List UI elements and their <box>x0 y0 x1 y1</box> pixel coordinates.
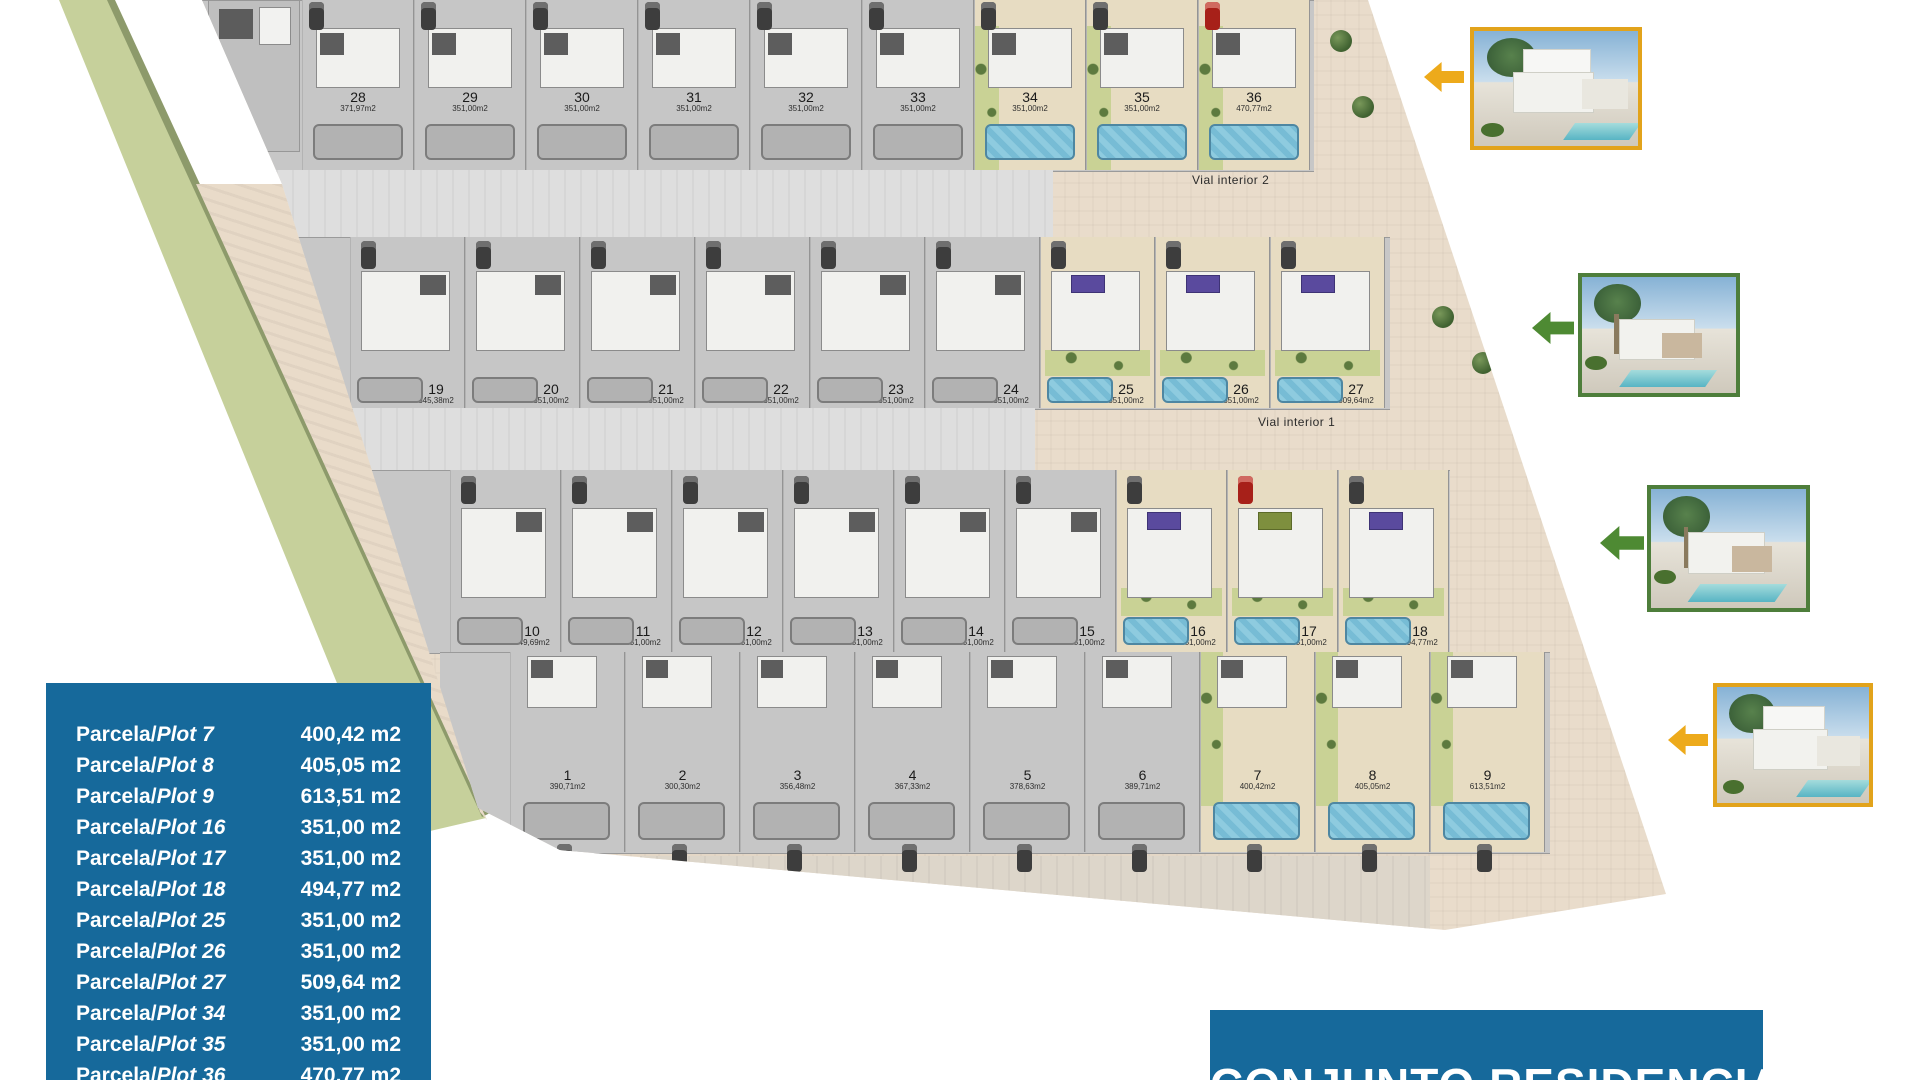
plot-number: 6 <box>1086 768 1199 782</box>
plot-number: 4 <box>856 768 969 782</box>
patio-terrace <box>544 33 568 55</box>
pool <box>425 124 515 160</box>
plot-list-label: Parcela/Plot 34 <box>76 998 225 1029</box>
plot-list-area: 351,00 m2 <box>301 936 405 967</box>
car-icon <box>572 476 587 504</box>
car-icon <box>981 2 996 30</box>
pool <box>638 802 725 840</box>
plot-list-row: Parcela/Plot 36470,77 m2 <box>76 1060 405 1091</box>
plot-label: 29351,00m2 <box>415 90 525 113</box>
car-icon <box>821 241 836 269</box>
plot-label: 31351,00m2 <box>639 90 749 113</box>
tree-icon <box>1472 352 1494 374</box>
plot-number: 29 <box>415 90 525 104</box>
plot-list-row: Parcela/Plot 34351,00 m2 <box>76 998 405 1029</box>
plot-list-area: 400,42 m2 <box>301 719 405 750</box>
solar-panel <box>1147 512 1181 530</box>
car-icon <box>309 2 324 30</box>
car-icon <box>645 2 660 30</box>
pool <box>1796 780 1872 797</box>
patio-terrace <box>320 33 344 55</box>
plot-area: 371,97m2 <box>303 104 413 113</box>
plot-tile: 25351,00m2 <box>1040 237 1155 408</box>
tree-icon <box>1496 268 1518 290</box>
pool <box>649 124 739 160</box>
plot-label: 8405,05m2 <box>1316 768 1429 791</box>
tree-icon <box>1588 548 1610 570</box>
plot-tile: 4367,33m2 <box>855 652 970 852</box>
plot-label: 2300,30m2 <box>626 768 739 791</box>
plot-tile: 19345,38m2 <box>350 237 465 408</box>
plot-label: 36470,77m2 <box>1199 90 1309 113</box>
plot-list-row: Parcela/Plot 18494,77 m2 <box>76 874 405 905</box>
pool <box>790 617 856 645</box>
plot-list-row: Parcela/Plot 7400,42 m2 <box>76 719 405 750</box>
pool <box>1688 584 1787 602</box>
plot-tile: 2300,30m2 <box>625 652 740 852</box>
vial-interior-2-label: Vial interior 2 <box>1192 173 1269 187</box>
pool <box>1047 377 1113 403</box>
plot-number: 3 <box>741 768 854 782</box>
plot-number: 35 <box>1087 90 1197 104</box>
plot-area: 351,00m2 <box>415 104 525 113</box>
pool <box>523 802 610 840</box>
plot-label: 5378,63m2 <box>971 768 1084 791</box>
vial-interior-2-road <box>196 170 1053 237</box>
plot-list-area: 351,00 m2 <box>301 843 405 874</box>
plot-number: 31 <box>639 90 749 104</box>
pool <box>702 377 768 403</box>
patio-terrace <box>768 33 792 55</box>
villa-wing <box>1582 79 1628 109</box>
garden-strip <box>1160 350 1265 376</box>
plot-tile: 23351,00m2 <box>810 237 925 408</box>
plot-tile: 30351,00m2 <box>526 0 638 170</box>
plot-area: 400,42m2 <box>1201 782 1314 791</box>
plot-number: 28 <box>303 90 413 104</box>
patio-terrace <box>627 512 653 532</box>
car-icon <box>1349 476 1364 504</box>
pool <box>1328 802 1415 840</box>
villa-photo-row3 <box>1647 485 1810 612</box>
plot-area: 405,05m2 <box>1316 782 1429 791</box>
car-icon <box>905 476 920 504</box>
plot-label: 30351,00m2 <box>527 90 637 113</box>
plot-tile: 11351,00m2 <box>561 470 672 652</box>
patio-terrace <box>535 275 561 295</box>
plot-tile: 26351,00m2 <box>1155 237 1270 408</box>
pool <box>761 124 851 160</box>
outer-road <box>640 856 1430 930</box>
patio-terrace <box>516 512 542 532</box>
car-icon <box>794 476 809 504</box>
plot-list-row: Parcela/Plot 27509,64 m2 <box>76 967 405 998</box>
plot-tile: 5378,63m2 <box>970 652 1085 852</box>
plot-number: 5 <box>971 768 1084 782</box>
plot-area: 351,00m2 <box>639 104 749 113</box>
car-icon <box>476 241 491 269</box>
plot-list-area: 351,00 m2 <box>301 998 405 1029</box>
plot-list-label: Parcela/Plot 18 <box>76 874 225 905</box>
plot-list-row: Parcela/Plot 9613,51 m2 <box>76 781 405 812</box>
stone-cladding <box>1662 333 1702 359</box>
arrow-left-icon <box>1600 526 1644 560</box>
car-icon <box>902 844 917 872</box>
pool <box>932 377 998 403</box>
patio-terrace <box>992 33 1016 55</box>
car-icon <box>1127 476 1142 504</box>
pool <box>1012 617 1078 645</box>
plot-tile: 6389,71m2 <box>1085 652 1200 852</box>
patio-terrace <box>656 33 680 55</box>
plot-tile: 18494,77m2 <box>1338 470 1449 652</box>
plot-list-label: Parcela/Plot 36 <box>76 1060 225 1091</box>
car-icon <box>787 844 802 872</box>
vial-interior-1-label: Vial interior 1 <box>1258 415 1335 429</box>
project-banner: CONJUNTO RESIDENCIAL <box>1210 1010 1763 1080</box>
pool <box>1097 124 1187 160</box>
plot-label: 9613,51m2 <box>1431 768 1544 791</box>
pool <box>568 617 634 645</box>
car-icon <box>1166 241 1181 269</box>
car-icon <box>1017 844 1032 872</box>
plot-area: 351,00m2 <box>527 104 637 113</box>
car-icon <box>421 2 436 30</box>
plot-list-label: Parcela/Plot 8 <box>76 750 214 781</box>
patio-terrace <box>1336 660 1358 678</box>
pool <box>868 802 955 840</box>
patio-terrace <box>432 33 456 55</box>
plot-tile: 32351,00m2 <box>750 0 862 170</box>
pool <box>1619 370 1717 387</box>
plot-tile: 33351,00m2 <box>862 0 974 170</box>
garden-strip <box>1045 350 1150 376</box>
plot-tile: 28371,97m2 <box>302 0 414 170</box>
pool <box>537 124 627 160</box>
plot-list-label: Parcela/Plot 25 <box>76 905 225 936</box>
patio-terrace <box>531 660 553 678</box>
patio-terrace <box>849 512 875 532</box>
pool <box>472 377 538 403</box>
plot-area: 390,71m2 <box>511 782 624 791</box>
plot-list-label: Parcela/Plot 35 <box>76 1029 225 1060</box>
car-icon <box>1247 844 1262 872</box>
plot-number: 30 <box>527 90 637 104</box>
plot-list-area: 613,51 m2 <box>301 781 405 812</box>
garden-strip <box>1275 350 1380 376</box>
villa-photo-top <box>1470 27 1642 150</box>
plot-tile: 16351,00m2 <box>1116 470 1227 652</box>
bush-icon <box>1481 123 1504 137</box>
car-icon <box>706 241 721 269</box>
pool <box>679 617 745 645</box>
patio-terrace <box>880 275 906 295</box>
tree-icon <box>1672 834 1694 856</box>
tree-icon <box>1432 306 1454 328</box>
plot-tile: 31351,00m2 <box>638 0 750 170</box>
plot-tile: 29351,00m2 <box>414 0 526 170</box>
plot-list-area: 470,77 m2 <box>301 1060 405 1091</box>
plot-tile: 10349,69m2 <box>450 470 561 652</box>
patio-terrace <box>1106 660 1128 678</box>
car-icon <box>361 241 376 269</box>
car-icon <box>1281 241 1296 269</box>
garage-corner-block <box>208 0 300 152</box>
car-icon <box>672 844 687 872</box>
arrow-left-icon <box>1532 312 1574 344</box>
plot-tile: 14351,00m2 <box>894 470 1005 652</box>
pool <box>1345 617 1411 645</box>
pool <box>1098 802 1185 840</box>
plot-area: 378,63m2 <box>971 782 1084 791</box>
plot-number: 36 <box>1199 90 1309 104</box>
plot-list-row: Parcela/Plot 17351,00 m2 <box>76 843 405 874</box>
plot-tile: 1390,71m2 <box>510 652 625 852</box>
solar-panel <box>1301 275 1335 293</box>
car-icon <box>683 476 698 504</box>
plot-list-label: Parcela/Plot 26 <box>76 936 225 967</box>
plot-list-label: Parcela/Plot 27 <box>76 967 225 998</box>
pool <box>457 617 523 645</box>
plot-list-label: Parcela/Plot 17 <box>76 843 225 874</box>
plot-area: 356,48m2 <box>741 782 854 791</box>
car-icon <box>461 476 476 504</box>
solar-panel <box>1369 512 1403 530</box>
bush-icon <box>1654 570 1676 584</box>
plot-list-area: 351,00 m2 <box>301 1029 405 1060</box>
tree-icon <box>1330 30 1352 52</box>
plot-label: 28371,97m2 <box>303 90 413 113</box>
plot-area: 389,71m2 <box>1086 782 1199 791</box>
plot-list-row: Parcela/Plot 8405,05 m2 <box>76 750 405 781</box>
plot-list-area: 509,64 m2 <box>301 967 405 998</box>
pool <box>983 802 1070 840</box>
plot-list-label: Parcela/Plot 7 <box>76 719 214 750</box>
plot-tile: 15351,00m2 <box>1005 470 1116 652</box>
plot-label: 32351,00m2 <box>751 90 861 113</box>
pool <box>1277 377 1343 403</box>
plot-number: 33 <box>863 90 973 104</box>
patio-terrace <box>960 512 986 532</box>
tree-icon <box>1618 606 1640 628</box>
tree-icon <box>1652 782 1674 804</box>
patio-terrace <box>995 275 1021 295</box>
pool <box>817 377 883 403</box>
pool <box>985 124 1075 160</box>
pool <box>873 124 963 160</box>
villa-photo-row2 <box>1578 273 1740 397</box>
plot-number: 1 <box>511 768 624 782</box>
plot-tile: 21351,00m2 <box>580 237 695 408</box>
plot-label: 4367,33m2 <box>856 768 969 791</box>
arrow-left-icon <box>1424 62 1464 92</box>
plot-list-label: Parcela/Plot 16 <box>76 812 225 843</box>
car-icon <box>1132 844 1147 872</box>
plot-label: 3356,48m2 <box>741 768 854 791</box>
plot-tile: 24351,00m2 <box>925 237 1040 408</box>
tree-icon <box>1506 398 1528 420</box>
plot-area: 351,00m2 <box>751 104 861 113</box>
plot-area: 613,51m2 <box>1431 782 1544 791</box>
car-icon <box>1362 844 1377 872</box>
plot-area: 300,30m2 <box>626 782 739 791</box>
pool <box>587 377 653 403</box>
car-icon <box>1051 241 1066 269</box>
tree-icon <box>1556 492 1578 514</box>
plot-label: 34351,00m2 <box>975 90 1085 113</box>
vial-interior-1-road <box>300 408 1035 470</box>
plot-label: 35351,00m2 <box>1087 90 1197 113</box>
plot-list-row: Parcela/Plot 26351,00 m2 <box>76 936 405 967</box>
plot-area: 367,33m2 <box>856 782 969 791</box>
plot-list-area: 405,05 m2 <box>301 750 405 781</box>
plot-number: 7 <box>1201 768 1314 782</box>
plot-list-panel: Parcela/Plot 7400,42 m2Parcela/Plot 8405… <box>46 683 431 1080</box>
pool <box>753 802 840 840</box>
patio-terrace <box>420 275 446 295</box>
car-icon <box>533 2 548 30</box>
plot-tile: 9613,51m2 <box>1430 652 1545 852</box>
car-icon <box>557 844 572 872</box>
plot-tile: 8405,05m2 <box>1315 652 1430 852</box>
plot-area: 470,77m2 <box>1199 104 1309 113</box>
patio-terrace <box>761 660 783 678</box>
bush-icon <box>1723 780 1744 794</box>
car-icon <box>591 241 606 269</box>
car-icon <box>1093 2 1108 30</box>
pool <box>1213 802 1300 840</box>
solar-panel <box>1186 275 1220 293</box>
plot-label: 7400,42m2 <box>1201 768 1314 791</box>
plot-tile: 13351,00m2 <box>783 470 894 652</box>
pool <box>313 124 403 160</box>
villa-photo-bottom <box>1713 683 1873 807</box>
plot-tile: 20351,00m2 <box>465 237 580 408</box>
project-title: CONJUNTO RESIDENCIAL <box>1210 1010 1763 1080</box>
pool <box>1563 123 1641 140</box>
patio-terrace <box>1104 33 1128 55</box>
plot-label: 6389,71m2 <box>1086 768 1199 791</box>
plot-number: 34 <box>975 90 1085 104</box>
car-icon <box>1016 476 1031 504</box>
pool <box>1123 617 1189 645</box>
plot-tile: 35351,00m2 <box>1086 0 1198 170</box>
patio-terrace <box>1216 33 1240 55</box>
pool <box>1443 802 1530 840</box>
plot-list-row: Parcela/Plot 16351,00 m2 <box>76 812 405 843</box>
plot-tile: 17351,00m2 <box>1227 470 1338 652</box>
patio-terrace <box>1221 660 1243 678</box>
car-icon <box>869 2 884 30</box>
patio-terrace <box>650 275 676 295</box>
plot-number: 32 <box>751 90 861 104</box>
patio-terrace <box>1451 660 1473 678</box>
plot-number: 2 <box>626 768 739 782</box>
bush-icon <box>1585 356 1607 370</box>
plot-tile: 12351,00m2 <box>672 470 783 652</box>
plot-number: 9 <box>1431 768 1544 782</box>
pool <box>1234 617 1300 645</box>
patio-terrace <box>765 275 791 295</box>
plot-area: 351,00m2 <box>863 104 973 113</box>
plot-tile: 27509,64m2 <box>1270 237 1385 408</box>
plot-list-area: 494,77 m2 <box>301 874 405 905</box>
plot-list-label: Parcela/Plot 9 <box>76 781 214 812</box>
patio-terrace <box>738 512 764 532</box>
plot-area: 351,00m2 <box>1087 104 1197 113</box>
plot-label: 1390,71m2 <box>511 768 624 791</box>
car-icon <box>936 241 951 269</box>
plot-list-area: 351,00 m2 <box>301 905 405 936</box>
solar-panel <box>1071 275 1105 293</box>
car-icon <box>757 2 772 30</box>
car-icon <box>1205 2 1220 30</box>
car-icon <box>1477 844 1492 872</box>
patio-terrace <box>646 660 668 678</box>
arrow-left-icon <box>1668 725 1708 755</box>
plot-tile: 36470,77m2 <box>1198 0 1310 170</box>
plot-list-area: 351,00 m2 <box>301 812 405 843</box>
pool <box>357 377 423 403</box>
plot-list-row: Parcela/Plot 25351,00 m2 <box>76 905 405 936</box>
pool <box>1209 124 1299 160</box>
patio-terrace <box>876 660 898 678</box>
plot-list-row: Parcela/Plot 35351,00 m2 <box>76 1029 405 1060</box>
car-icon <box>1238 476 1253 504</box>
plot-number: 8 <box>1316 768 1429 782</box>
villa-wing <box>1817 736 1860 766</box>
patio-terrace <box>1071 512 1097 532</box>
tree-icon <box>1352 96 1374 118</box>
plot-label: 33351,00m2 <box>863 90 973 113</box>
patio-terrace <box>880 33 904 55</box>
pool <box>901 617 967 645</box>
patio-terrace <box>991 660 1013 678</box>
plot-tile: 34351,00m2 <box>974 0 1086 170</box>
stone-cladding <box>1732 546 1772 572</box>
solar-panel <box>1258 512 1292 530</box>
plot-tile: 7400,42m2 <box>1200 652 1315 852</box>
pool <box>1162 377 1228 403</box>
plot-tile: 22351,00m2 <box>695 237 810 408</box>
plot-tile: 3356,48m2 <box>740 652 855 852</box>
plot-area: 351,00m2 <box>975 104 1085 113</box>
